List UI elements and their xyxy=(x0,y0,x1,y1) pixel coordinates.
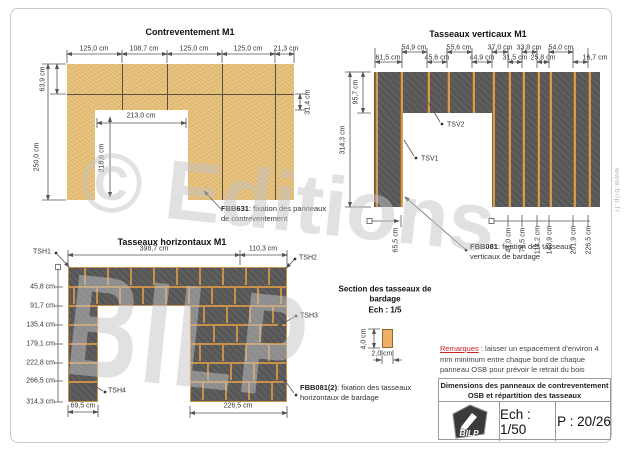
svg-text:BILP: BILP xyxy=(459,428,479,438)
title-block: Dimensions des panneaux de contreventeme… xyxy=(438,378,611,440)
bilp-logo-icon: BILP xyxy=(448,404,490,440)
scale-value: Ech : 1/50 xyxy=(499,402,555,441)
title-block-line1: Dimensions des panneaux de contreventeme… xyxy=(439,381,610,391)
title-block-title: Dimensions des panneaux de contreventeme… xyxy=(439,379,610,402)
drawing-sheet: Contreventement M1 125,0 cm 108,7 cm 125… xyxy=(0,0,640,452)
page-number: P : 20/26 xyxy=(555,402,612,441)
title-block-line2: OSB et répartition des tasseaux xyxy=(439,391,610,401)
bilp-logo: BILP xyxy=(439,402,499,441)
